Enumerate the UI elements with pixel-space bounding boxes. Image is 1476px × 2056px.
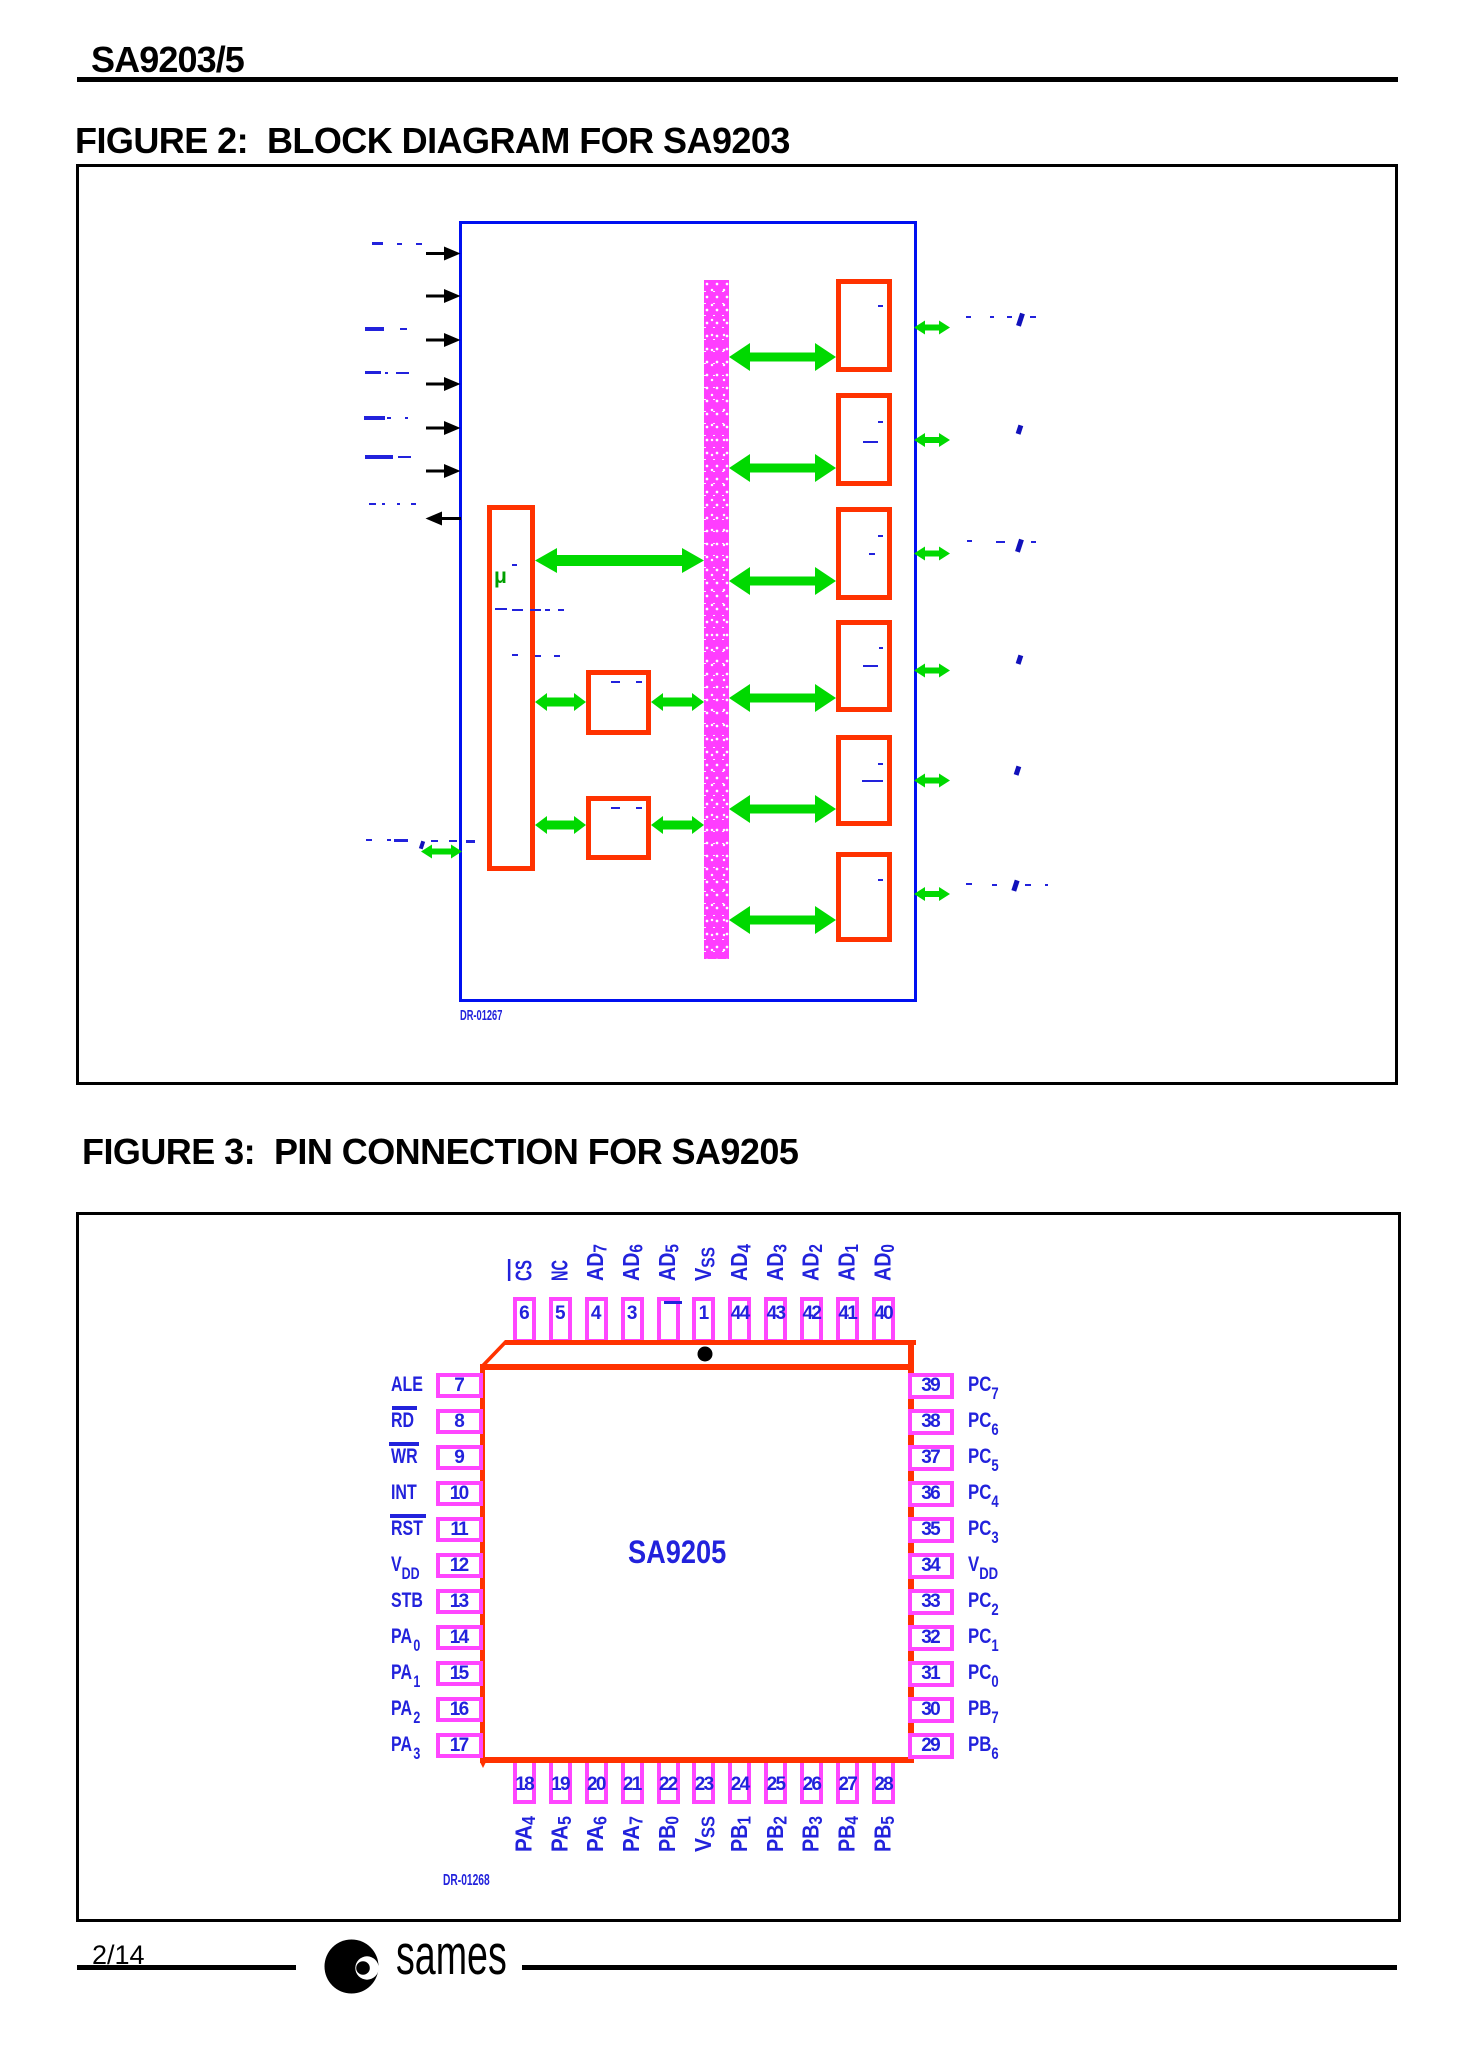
svg-text:sames: sames	[396, 1923, 507, 1987]
